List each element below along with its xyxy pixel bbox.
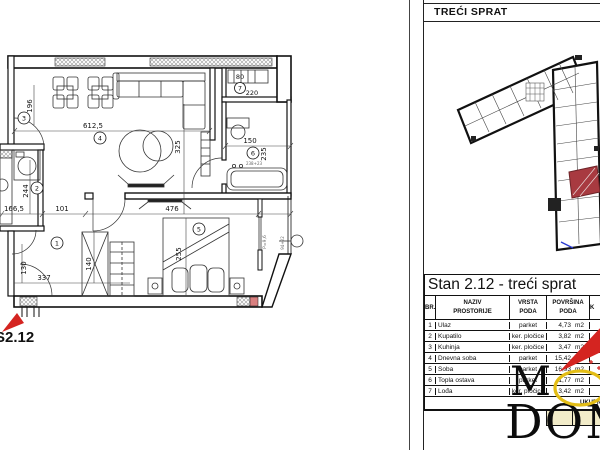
- coffee-table-icon: [119, 130, 161, 172]
- vent-icon: [228, 70, 268, 83]
- spec-loggia: P=9,6: [262, 235, 268, 249]
- table-icon: [57, 86, 73, 99]
- watermark-line2: DOM: [505, 399, 600, 446]
- col-pov-2: PODA: [547, 309, 589, 315]
- chair-icon: [67, 77, 78, 90]
- dim-hall-a: 101: [55, 205, 68, 213]
- stairs-icon: [526, 83, 544, 101]
- room-circle-6: 6: [251, 150, 255, 158]
- room-circle-1: 1: [55, 240, 59, 248]
- spec-door1: 94+22: [280, 236, 285, 250]
- col-naziv-1: NAZIV: [436, 300, 509, 306]
- dim-room2-h: 244: [22, 184, 30, 198]
- row-naziv: Soba: [436, 366, 510, 373]
- row-unit: m2: [571, 377, 588, 384]
- row-naziv: Kuhinja: [436, 344, 510, 351]
- room-circle-2: 2: [35, 185, 39, 193]
- shelf-icon: [110, 242, 134, 296]
- spec-door2: 238+23: [246, 161, 263, 166]
- building-key-plan: [427, 26, 600, 272]
- room-circle-7: 7: [238, 85, 242, 93]
- nightstand-icon: [230, 278, 244, 294]
- row-br: 6: [425, 377, 436, 384]
- row-unit: m2: [571, 388, 588, 395]
- row-br: 1: [425, 322, 436, 329]
- dim-bath-h: 235: [260, 147, 268, 160]
- tv-icon: [118, 175, 191, 209]
- row-naziv: Dnevna soba: [436, 355, 510, 362]
- row-unit: m2: [571, 366, 588, 373]
- screenshot-root: 612,5 325 196 101 337 130 140 150 235 24…: [0, 0, 600, 450]
- row-vrsta: ker. pločice: [510, 333, 547, 340]
- col-vrsta-2: PODA: [510, 309, 546, 315]
- lamp-icon: [234, 283, 240, 289]
- row-br: 7: [425, 388, 436, 395]
- row-naziv: Lođa: [436, 388, 510, 395]
- room-circle-5: 5: [197, 226, 201, 234]
- row-vrsta: parket: [510, 322, 547, 329]
- dim-hall-b: 337: [37, 274, 50, 282]
- chair-icon: [88, 95, 99, 108]
- row-unit: m2: [571, 333, 588, 340]
- row-unit: m2: [571, 322, 588, 329]
- divider-line: [409, 0, 410, 450]
- chair-icon: [88, 77, 99, 90]
- row-area: 4,73: [547, 322, 571, 329]
- highlighted-unit: [569, 166, 600, 198]
- sink-icon: [227, 118, 249, 139]
- header-rule-top: [424, 3, 600, 4]
- dim-niche-w: 80: [236, 73, 244, 81]
- dim-living-width: 612,5: [83, 122, 103, 130]
- dim-niche-h: 220: [246, 89, 258, 97]
- core-block: [548, 198, 561, 211]
- dim-room2-w: 166,5: [4, 205, 24, 213]
- row-area: 3,82: [547, 333, 571, 340]
- col-naziv-2: PROSTORIJE: [436, 309, 509, 315]
- row-vrsta: ker. pločice: [510, 344, 547, 351]
- sofa-icon: [113, 73, 205, 129]
- chair-icon: [102, 95, 113, 108]
- row-br: 3: [425, 344, 436, 351]
- lamp-icon: [152, 283, 158, 289]
- chair-icon: [67, 95, 78, 108]
- row-br: 5: [425, 366, 436, 373]
- loggia-symbol-icon: [291, 235, 303, 247]
- room-circle-4: 4: [98, 135, 102, 143]
- washing-machine-icon: [14, 150, 40, 180]
- floor-title: TREĆI SPRAT: [434, 6, 508, 18]
- plan-dimension-lines: [0, 85, 293, 296]
- apartment-floor-plan: 612,5 325 196 101 337 130 140 150 235 24…: [0, 0, 420, 450]
- header-rule-bottom: [424, 21, 600, 22]
- nightstand-icon: [148, 278, 162, 294]
- chair-icon: [102, 77, 113, 90]
- table-row: 2 Kupatilo ker. pločice 3,82m2: [425, 331, 600, 342]
- col-k: K: [590, 305, 600, 311]
- chair-icon: [53, 77, 64, 90]
- col-br: BR.: [425, 305, 435, 311]
- table-title: Stan 2.12 - treći sprat: [425, 275, 600, 296]
- dim-living-depth: 325: [174, 140, 182, 153]
- row-br: 2: [425, 333, 436, 340]
- row-naziv: Ulaz: [436, 322, 510, 329]
- bathtub-icon: [227, 164, 287, 190]
- dim-bath-w: 150: [243, 137, 256, 145]
- row-br: 4: [425, 355, 436, 362]
- row-area: 3,47: [547, 344, 571, 351]
- room-circle-3: 3: [22, 115, 26, 123]
- table-header-row: BR. NAZIV PROSTORIJE VRSTA PODA POVRŠINA…: [425, 296, 600, 320]
- table-row: 3 Kuhinja ker. pločice 3,47m2: [425, 342, 600, 353]
- table-icon: [92, 86, 108, 99]
- row-naziv: Kupatilo: [436, 333, 510, 340]
- table-row: 1 Ulaz parket 4,73m2: [425, 320, 600, 331]
- dim-closet: 140: [85, 257, 93, 270]
- row-unit: m2: [571, 344, 588, 351]
- row-naziv: Topla ostava: [436, 377, 510, 384]
- coffee-table-icon: [143, 131, 173, 161]
- chair-icon: [53, 95, 64, 108]
- dim-kitchen: 196: [26, 99, 34, 113]
- radiator-icon: [201, 132, 210, 176]
- col-vrsta-1: VRSTA: [510, 300, 546, 306]
- dim-bed-w: 476: [165, 205, 179, 213]
- unit-label: S2.12: [0, 329, 34, 346]
- dim-hall-c: 130: [20, 261, 28, 274]
- col-pov-1: POVRŠINA: [547, 300, 589, 306]
- row-unit: m2: [571, 355, 588, 362]
- dim-bed-h: 255: [175, 247, 183, 260]
